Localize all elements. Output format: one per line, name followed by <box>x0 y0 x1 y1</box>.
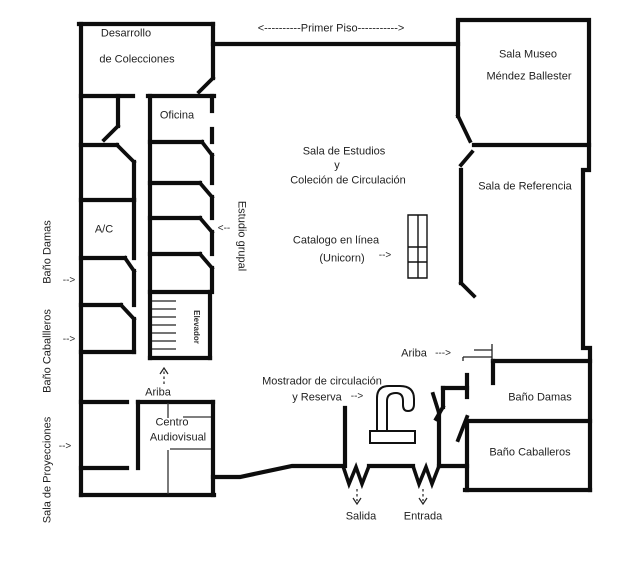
label-entrada: Entrada <box>404 512 443 523</box>
label-ac-room: A/C <box>95 225 113 236</box>
label-mostrador-line2: y Reserva <box>292 393 342 404</box>
exit-door-zigzag <box>343 466 369 484</box>
label-desarrollo-line2: de Colecciones <box>99 55 174 66</box>
circulation-desk <box>370 386 415 443</box>
label-sala-referencia: Sala de Referencia <box>478 182 572 193</box>
label-centro-line1: Centro <box>155 418 188 429</box>
label-desarrollo-line1: Desarrollo <box>101 29 151 40</box>
label-sala-estudios-line1: Sala de Estudios <box>303 147 386 158</box>
label-salida: Salida <box>346 512 377 523</box>
right-arrow-bano-caballeros: --> <box>63 335 76 345</box>
label-sala-estudios-line3: Coleción de Circulación <box>290 176 406 187</box>
right-arrow-mostrador: --> <box>351 392 364 402</box>
entrance-door-zigzag <box>413 466 439 484</box>
right-arrow-catalogo: --> <box>379 251 392 261</box>
label-estudio-grupal: Estudio grupal <box>236 201 247 271</box>
floor-plan-walls <box>0 0 639 571</box>
label-primer-piso: <----------Primer Piso-----------> <box>258 24 405 35</box>
right-arrow-bano-damas: --> <box>63 276 76 286</box>
label-catalogo-line1: Catalogo en línea <box>293 236 379 247</box>
label-oficina: Oficina <box>160 111 194 122</box>
label-sala-museo-line2: Méndez Ballester <box>487 72 572 83</box>
side-label-sala-proyecciones: Sala de Proyecciones <box>43 417 54 523</box>
side-label-bano-caballeros: Baño Caballleros <box>43 309 54 393</box>
right-arrow-ariba-stairs: ---> <box>435 349 451 359</box>
label-elevador: Elevador <box>192 310 200 344</box>
label-catalogo-line2: (Unicorn) <box>319 254 364 265</box>
label-centro-line2: Audiovisual <box>150 433 206 444</box>
left-arrow-estudio-grupal: <-- <box>218 224 231 234</box>
side-label-bano-damas: Baño Damas <box>43 220 54 284</box>
right-arrow-sala-proyecciones: --> <box>59 442 72 452</box>
catalog-shelf <box>408 215 427 278</box>
stair-treads <box>152 301 176 349</box>
label-mostrador-line1: Mostrador de circulación <box>262 377 382 388</box>
label-bano-damas-room: Baño Damas <box>508 393 572 404</box>
label-bano-caballeros-room: Baño Caballeros <box>489 448 570 459</box>
right-stairs-symbol <box>463 344 492 361</box>
label-ariba-elevator: Ariba <box>145 388 171 399</box>
library-floor-plan: Desarrollo de Colecciones <----------Pri… <box>0 0 639 571</box>
label-sala-museo-line1: Sala Museo <box>499 50 557 61</box>
label-ariba-stairs: Ariba <box>401 349 427 360</box>
label-sala-estudios-line2: y <box>334 161 340 172</box>
